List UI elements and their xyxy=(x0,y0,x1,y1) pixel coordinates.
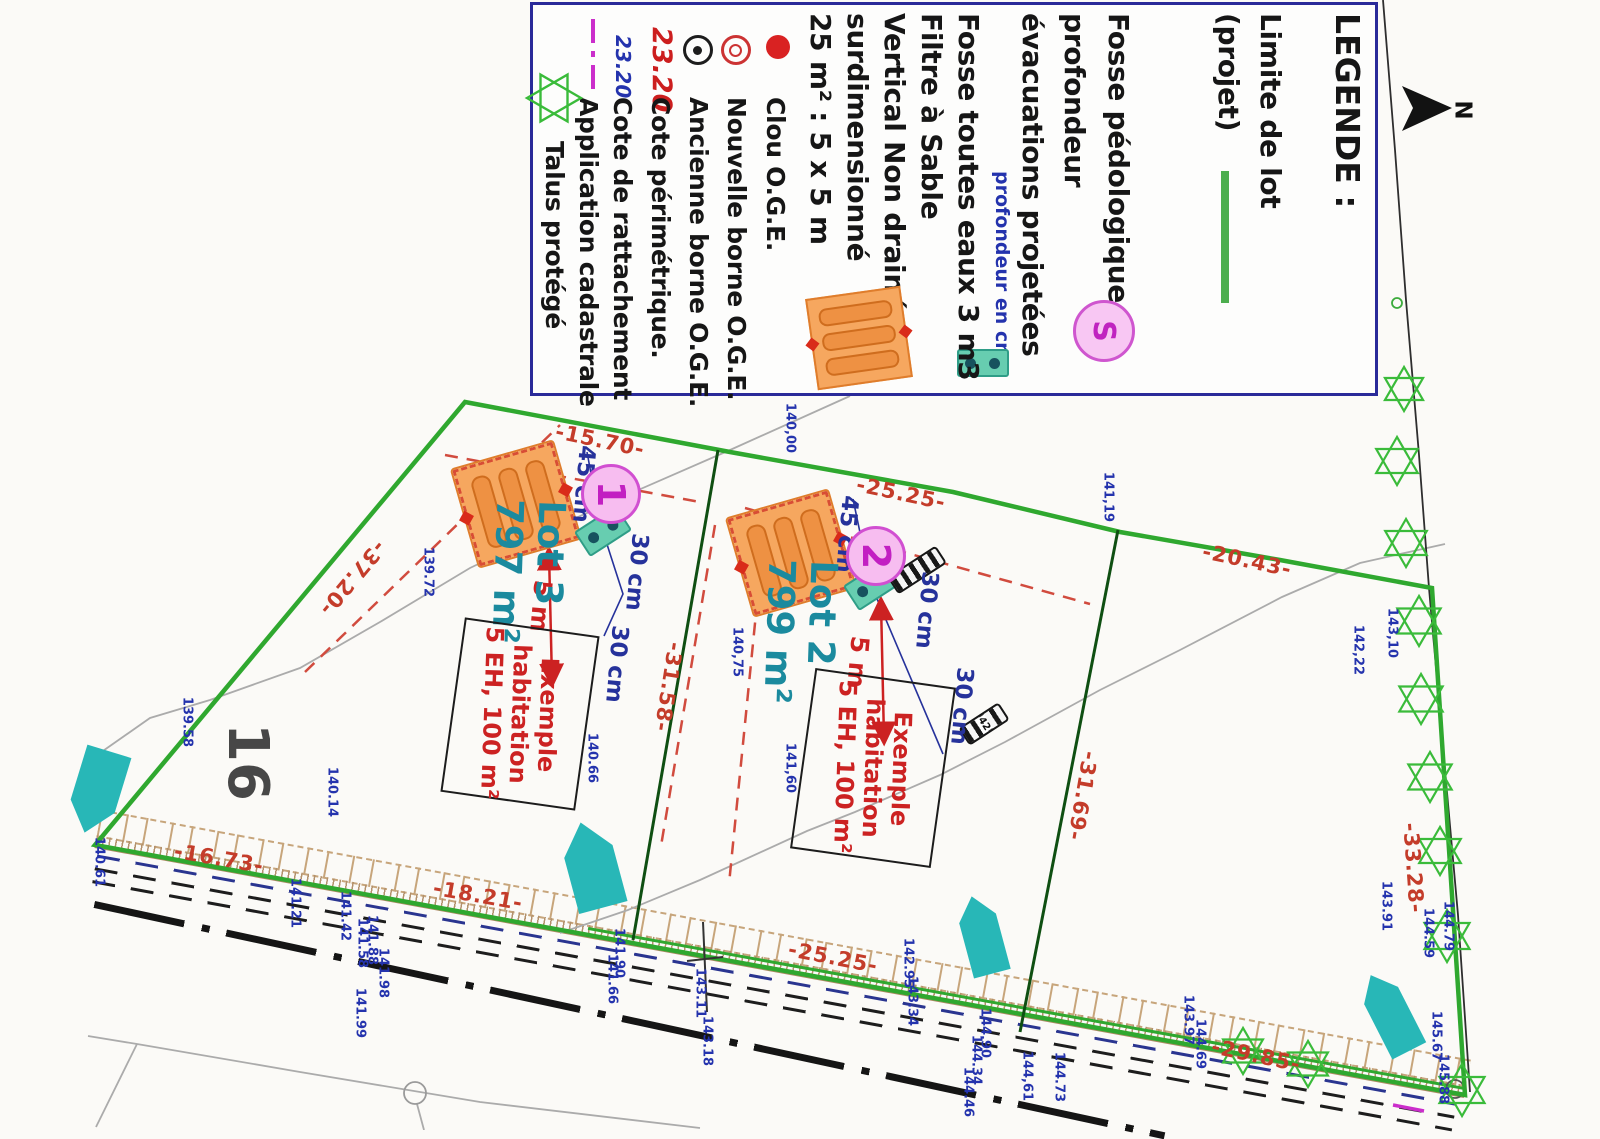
rattachement-value-sample: 23.20 xyxy=(611,35,635,98)
red-dot-icon xyxy=(766,35,790,59)
magenta-dashdot-icon xyxy=(591,19,595,93)
sand-filter-icon xyxy=(805,286,913,390)
example-habitation-label: Exemplehabitation5 EH, 100 m² xyxy=(475,626,565,802)
elevation-label: 141.98 xyxy=(377,948,390,998)
legend-note-profondeur-cm: profondeur en cm xyxy=(991,171,1013,362)
elevation-label: 144.69 xyxy=(1194,1019,1207,1069)
elevation-label: 140.61 xyxy=(93,837,106,887)
legend-item-nouvelle-borne: Nouvelle borne O.G.E. xyxy=(722,97,751,400)
legend-item-ancienne-borne: Ancienne borne O.G.E. xyxy=(684,97,713,407)
legend-item-filtre: Filtre à Sable xyxy=(915,13,948,219)
elevation-label: 144.73 xyxy=(1053,1052,1066,1102)
legend-title: LEGENDE : xyxy=(1328,13,1367,208)
elevation-label: 145.88 xyxy=(1437,1054,1450,1104)
cadastral-magenta-tick xyxy=(1393,1105,1424,1111)
legend-item-fosse-pedologique: Fosse pédologique : xyxy=(1102,13,1135,323)
elevation-label: 141,60 xyxy=(784,743,797,793)
legend-item-limite: Limite de lot xyxy=(1254,13,1287,208)
offset-dimension-label: 30 cm xyxy=(601,624,631,703)
legend-item-clou: Clou O.G.E. xyxy=(761,97,790,251)
lot-marker: 1 xyxy=(581,464,641,524)
talus-star-icon xyxy=(1385,367,1423,400)
legend-item-application-cadastrale: Application cadastrale xyxy=(574,97,603,407)
legend-item-limite-2: (projet) xyxy=(1212,13,1245,131)
legend-item-cote-rattachement: Cote de rattachement xyxy=(608,97,637,400)
legend-item-surdimensionne: surdimensionné xyxy=(841,13,874,261)
elevation-label: 143.11 xyxy=(694,968,707,1018)
legend-item-25m2: 25 m² : 5 x 5 m xyxy=(804,13,837,245)
elevation-label: 141.99 xyxy=(354,988,367,1038)
legend-item-talus: Talus protégé xyxy=(540,141,569,329)
elevation-label: 143.34 xyxy=(906,976,919,1026)
talus-star-icon xyxy=(1376,437,1418,473)
elevation-label: 144.59 xyxy=(1422,908,1435,958)
legend-item-profondeur: profondeur xyxy=(1058,13,1091,187)
elevation-label: 140.14 xyxy=(326,767,339,817)
elevation-label: 142,22 xyxy=(1352,625,1365,675)
parcel-16-label: 16 xyxy=(219,723,275,801)
elevation-label: 143.18 xyxy=(701,1016,714,1066)
elevation-label: 141,19 xyxy=(1102,472,1115,522)
talus-star-icon xyxy=(1376,449,1418,485)
cadastral-site-plan: 42 16 N -15.70--25.25--20.43--37.20--31.… xyxy=(0,0,1600,1130)
offset-dimension-label: 30 cm xyxy=(621,532,651,611)
soil-pit-icon: S xyxy=(1073,300,1135,362)
flow-arrow-icon xyxy=(63,745,132,840)
elevation-label: 140,75 xyxy=(731,627,744,677)
new-marker-icon xyxy=(721,35,751,65)
elevation-label: 140.66 xyxy=(586,733,599,783)
star-icon xyxy=(523,67,585,129)
elevation-label: 144,61 xyxy=(1021,1051,1034,1101)
red-dashed-implantation-lines xyxy=(305,425,1090,884)
talus-star-icon xyxy=(1419,827,1461,863)
offset-dimension-label: 30 cm xyxy=(911,570,941,649)
elevation-label: 143.91 xyxy=(1380,881,1393,931)
legend-item-fosse-eaux: Fosse toutes eaux 3 m3 xyxy=(952,13,985,381)
flow-arrow-icon xyxy=(953,891,1010,978)
talus-star-icon xyxy=(1399,687,1442,725)
elevation-label: 139.72 xyxy=(422,547,435,597)
green-line-icon xyxy=(1221,171,1229,303)
measurement-label: -33.28- xyxy=(1399,822,1426,914)
north-arrow-icon xyxy=(1402,86,1452,131)
soil-pit-letter: S xyxy=(1087,320,1122,342)
elevation-label: 141.42 xyxy=(339,891,352,941)
elevation-label: 140,00 xyxy=(784,403,797,453)
old-marker-icon xyxy=(683,35,713,65)
elevation-label: 141.66 xyxy=(606,954,619,1004)
legend-item-vertical: Vertical Non drainé xyxy=(878,13,911,312)
north-label: N xyxy=(1451,100,1474,119)
example-habitation-label: Exemplehabitation5 EH, 100 m² xyxy=(828,680,918,856)
elevation-label: 143,10 xyxy=(1386,608,1399,658)
elevation-label: 144.46 xyxy=(962,1067,975,1117)
flow-arrow-icon xyxy=(1354,967,1426,1060)
elevation-label: 144.79 xyxy=(1442,901,1455,951)
legend-panel: LEGENDE : Limite de lot (projet) Fosse p… xyxy=(530,2,1378,396)
flow-arrow-icon xyxy=(556,816,627,914)
talus-stars-group xyxy=(1223,367,1484,1116)
legend-item-cote-perimetrique: Cote périmétrique. xyxy=(646,97,675,358)
talus-star-icon xyxy=(1385,378,1423,411)
lot-marker: 2 xyxy=(846,526,906,586)
culvert-label: 42 xyxy=(975,714,993,733)
legend-item-evacuations: évacuations projetées xyxy=(1016,13,1049,357)
elevation-label: 139.58 xyxy=(181,697,194,747)
contour-lines xyxy=(88,396,1445,1130)
elevation-label: 141.21 xyxy=(289,878,302,928)
